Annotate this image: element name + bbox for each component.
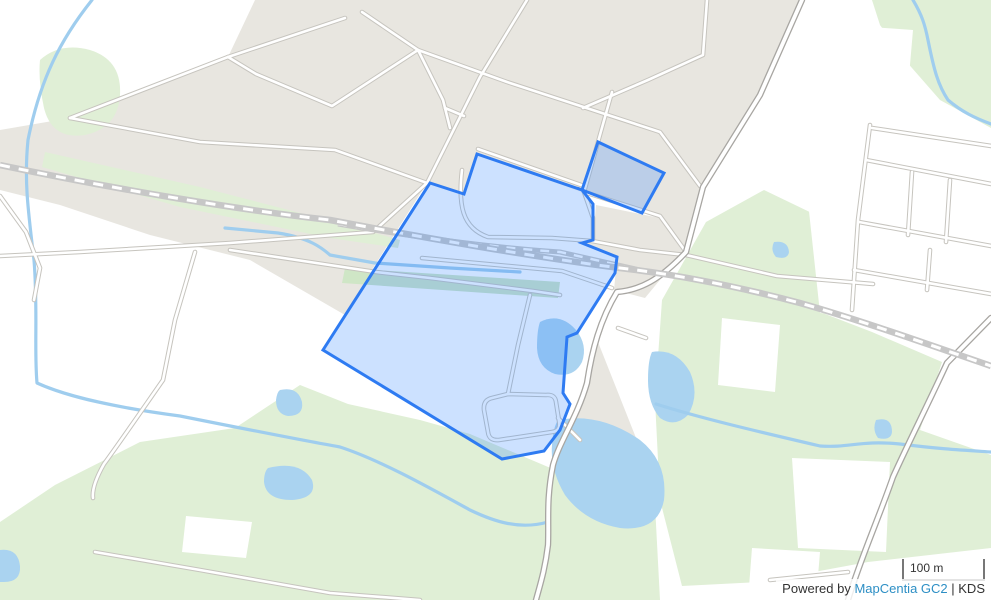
attribution-link[interactable]: MapCentia GC2 (854, 581, 947, 596)
attribution-bar: Powered by MapCentia GC2 | KDS (776, 579, 991, 600)
scale-bar: 100 m (902, 559, 985, 581)
attribution-rest: | KDS (948, 581, 985, 596)
map-viewport[interactable]: 100 m Powered by MapCentia GC2 | KDS (0, 0, 991, 600)
scale-bar-label: 100 m (910, 561, 943, 575)
attribution-prefix: Powered by (782, 581, 854, 596)
basemap-tiles (0, 0, 991, 600)
